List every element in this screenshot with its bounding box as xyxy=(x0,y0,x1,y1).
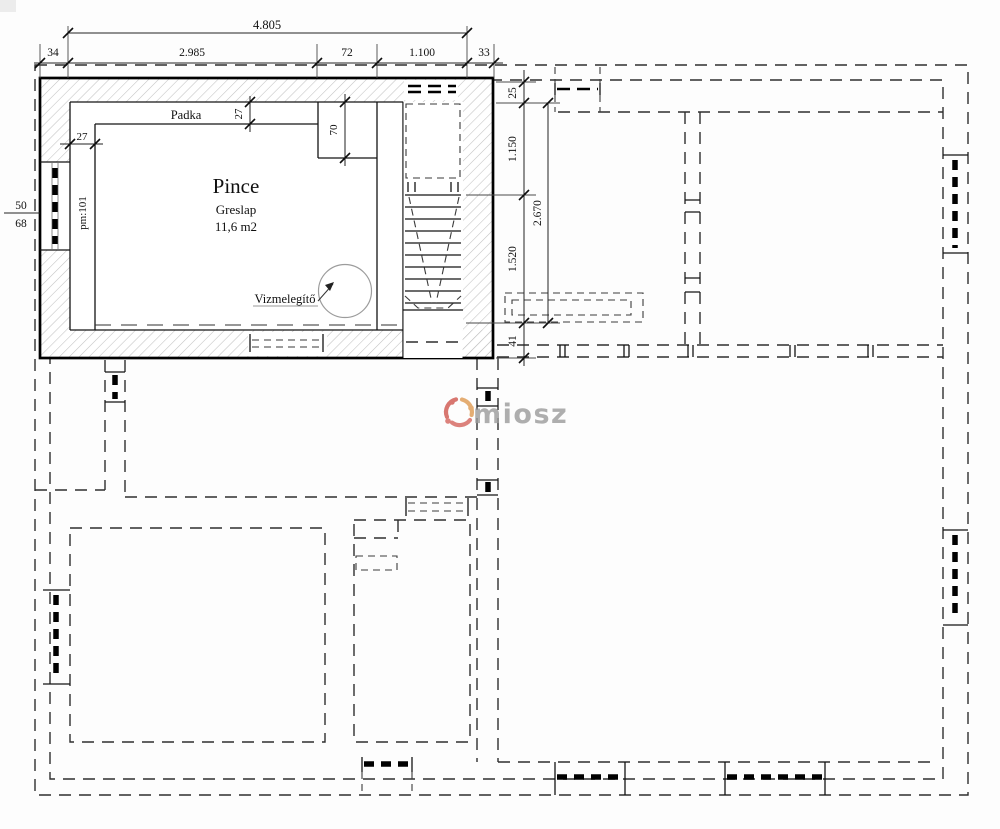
window-middle-wall-marks xyxy=(685,200,700,292)
dim-ledge-top: 27 xyxy=(233,108,245,120)
basement-window-top xyxy=(404,80,458,100)
dim-window-width: 50 xyxy=(15,200,27,212)
dim-right-chain-2: 1.520 xyxy=(507,246,519,272)
room-name: Pince xyxy=(213,174,260,198)
window-right-outer-wall-upper xyxy=(943,155,968,253)
dim-top-chain-4: 33 xyxy=(478,47,490,59)
porch-outline xyxy=(505,293,643,322)
stairs xyxy=(403,102,463,358)
dim-top-chain-1: 2.985 xyxy=(179,47,205,59)
dimensions-top: 4.805 34 2.985 72 1.100 33 xyxy=(34,18,503,78)
water-heater-label: Vizmelegítő xyxy=(254,292,315,306)
closet-outline xyxy=(356,556,397,570)
dim-window-height: 68 xyxy=(15,218,27,230)
window-left-outer-wall xyxy=(43,590,70,684)
room-area: 11,6 m2 xyxy=(215,219,257,234)
dim-ledge-step: 70 xyxy=(328,124,340,136)
door-mark-label: pm:101 xyxy=(77,196,89,230)
basement-block: Vizmelegítő Pince Greslap 11,6 m2 Padka … xyxy=(40,78,493,358)
window-right-outer-wall-lower xyxy=(943,530,968,625)
dim-top-overall: 4.805 xyxy=(253,18,281,32)
watermark-text: miosz xyxy=(473,399,568,430)
basement-window-left xyxy=(40,162,70,250)
scan-artifact xyxy=(0,0,16,12)
dim-top-chain-3: 1.100 xyxy=(409,47,435,59)
dim-top-chain-2: 72 xyxy=(341,47,353,59)
basement-window-bottom xyxy=(248,332,327,356)
floorplan-svg: Vizmelegítő Pince Greslap 11,6 m2 Padka … xyxy=(0,0,1000,829)
window-right-interior-wall-lower xyxy=(477,480,498,495)
window-middle-room-top xyxy=(406,498,468,516)
porch-inner-outline xyxy=(512,300,631,315)
dim-right-chain-1: 1.150 xyxy=(507,136,519,162)
window-bottom-left xyxy=(362,757,412,795)
dim-ledge-left: 27 xyxy=(77,131,89,143)
floorplan-canvas: Vizmelegítő Pince Greslap 11,6 m2 Padka … xyxy=(0,0,1000,829)
room-floor-finish: Greslap xyxy=(216,202,256,217)
dim-right-chain-3: 41 xyxy=(507,335,519,347)
dim-top-chain-0: 34 xyxy=(47,47,59,59)
window-top-upper-floor xyxy=(555,67,600,112)
ledge-label: Padka xyxy=(171,108,202,122)
dim-right-chain-0: 25 xyxy=(507,87,519,99)
dim-right-overall: 2.670 xyxy=(532,200,544,226)
window-left-interior-wall xyxy=(105,372,125,402)
miosz-logo-icon xyxy=(445,399,474,425)
watermark: miosz xyxy=(445,399,568,430)
